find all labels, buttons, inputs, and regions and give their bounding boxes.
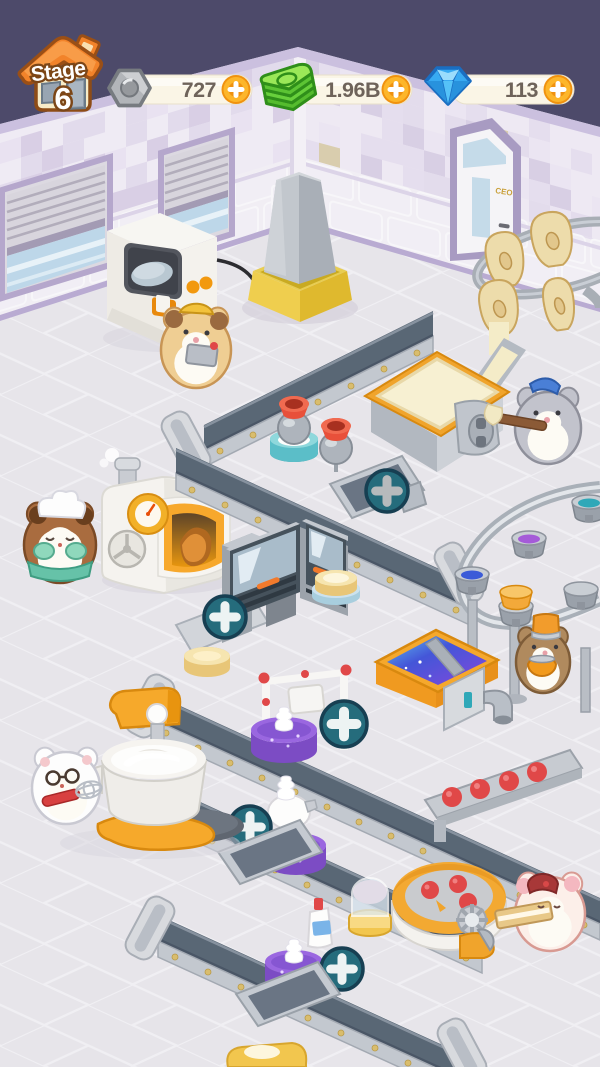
svg-text:113: 113 [505,78,539,102]
svg-text:1.96B: 1.96B [325,78,380,102]
svg-text:727: 727 [182,78,217,102]
svg-text:6: 6 [54,81,71,116]
